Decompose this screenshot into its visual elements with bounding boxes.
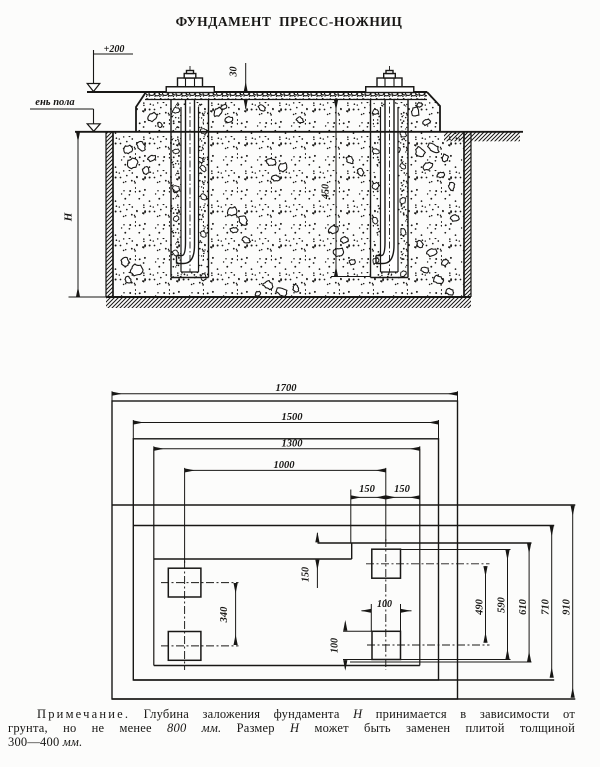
svg-text:30: 30 — [229, 67, 240, 78]
svg-text:H: H — [63, 212, 75, 222]
svg-text:1700: 1700 — [276, 383, 298, 394]
svg-text:490: 490 — [475, 598, 486, 616]
svg-text:ень пола: ень пола — [35, 97, 74, 108]
svg-text:150: 150 — [301, 567, 312, 582]
svg-text:150: 150 — [394, 484, 411, 495]
svg-text:590: 590 — [497, 596, 508, 613]
svg-text:100: 100 — [377, 599, 392, 610]
svg-text:100: 100 — [330, 638, 341, 653]
svg-text:+200: +200 — [104, 44, 125, 55]
svg-text:1300: 1300 — [282, 438, 304, 449]
svg-text:610: 610 — [518, 598, 529, 615]
svg-text:340: 340 — [219, 606, 230, 624]
svg-text:1500: 1500 — [282, 412, 304, 423]
svg-text:910: 910 — [562, 598, 573, 615]
svg-text:710: 710 — [541, 598, 552, 615]
svg-text:150: 150 — [359, 484, 376, 495]
svg-text:450: 450 — [321, 184, 332, 200]
svg-text:1000: 1000 — [274, 460, 296, 471]
